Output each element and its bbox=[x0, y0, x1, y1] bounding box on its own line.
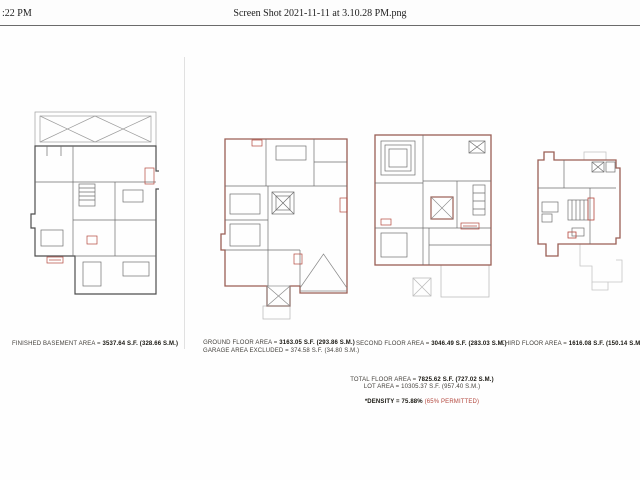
second-area-label-prefix: SECOND FLOOR AREA = bbox=[356, 341, 431, 347]
total-floor-area-value: 7825.62 S.F. (727.02 S.M.) bbox=[418, 377, 494, 383]
basement-area-label-value: 3537.64 S.F. (328.66 S.M.) bbox=[103, 341, 179, 347]
basement-floor-plan-drawing bbox=[27, 110, 159, 296]
basement-area-label: FINISHED BASEMENT AREA = 3537.64 S.F. (3… bbox=[12, 341, 177, 349]
basement-floor-plan bbox=[27, 110, 159, 296]
image-preview-window: :22 PM Screen Shot 2021-11-11 at 3.10.28… bbox=[0, 0, 640, 480]
third-area-label: THIRD FLOOR AREA = 1616.08 S.F. (150.14 … bbox=[501, 341, 639, 349]
ground-area-label: GROUND FLOOR AREA = 3163.05 S.F. (293.86… bbox=[203, 340, 355, 355]
third-area-label-value: 1616.08 S.F. (150.14 S.M.) bbox=[569, 341, 640, 347]
garage-excluded-value: 374.58 S.F. (34.80 S.M.) bbox=[291, 348, 360, 354]
density-value: *DENSITY = 75.88% bbox=[365, 399, 423, 405]
ground-area-value: 3163.05 S.F. (293.86 S.M.) bbox=[279, 340, 355, 346]
ground-area-line1: GROUND FLOOR AREA = 3163.05 S.F. (293.86… bbox=[203, 340, 355, 348]
lot-area-value: 10305.37 S.F. (957.40 S.M.) bbox=[401, 384, 480, 390]
third-floor-plan bbox=[528, 148, 630, 296]
second-floor-plan-drawing bbox=[373, 133, 493, 300]
garage-excluded-line: GARAGE AREA EXCLUDED = 374.58 S.F. (34.8… bbox=[203, 348, 355, 356]
third-area-label-prefix: THIRD FLOOR AREA = bbox=[501, 341, 569, 347]
lot-area-prefix: LOT AREA = bbox=[364, 384, 401, 390]
second-area-label-value: 3046.49 S.F. (283.03 S.M.) bbox=[431, 341, 507, 347]
density-permitted-note: (65% PERMITTED) bbox=[423, 399, 479, 405]
total-floor-area-line: TOTAL FLOOR AREA = 7825.62 S.F. (727.02 … bbox=[322, 377, 522, 384]
ground-floor-plan-drawing bbox=[218, 138, 348, 320]
second-area-label: SECOND FLOOR AREA = 3046.49 S.F. (283.03… bbox=[356, 341, 504, 349]
basement-area-label-prefix: FINISHED BASEMENT AREA = bbox=[12, 341, 103, 347]
second-floor-plan bbox=[373, 133, 493, 300]
garage-excluded-prefix: GARAGE AREA EXCLUDED = bbox=[203, 348, 291, 354]
ground-area-prefix: GROUND FLOOR AREA = bbox=[203, 340, 279, 346]
third-floor-plan-drawing bbox=[528, 148, 630, 296]
filename-title: Screen Shot 2021-11-11 at 3.10.28 PM.png bbox=[0, 8, 640, 19]
lot-area-line: LOT AREA = 10305.37 S.F. (957.40 S.M.) bbox=[322, 384, 522, 391]
density-line: *DENSITY = 75.88% (65% PERMITTED) bbox=[322, 399, 522, 406]
title-bar: :22 PM Screen Shot 2021-11-11 at 3.10.28… bbox=[0, 0, 640, 26]
area-totals: TOTAL FLOOR AREA = 7825.62 S.F. (727.02 … bbox=[322, 377, 522, 406]
ground-floor-plan bbox=[218, 138, 348, 320]
vertical-divider bbox=[184, 57, 185, 349]
total-floor-area-prefix: TOTAL FLOOR AREA = bbox=[350, 377, 418, 383]
plans-sheet: FINISHED BASEMENT AREA = 3537.64 S.F. (3… bbox=[0, 26, 640, 480]
